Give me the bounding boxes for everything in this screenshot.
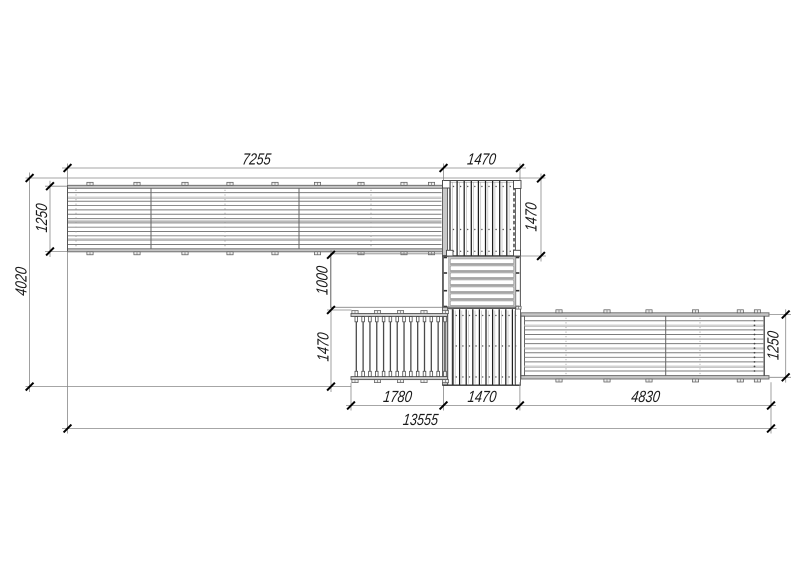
svg-text:1470: 1470	[467, 388, 498, 406]
svg-text:4830: 4830	[630, 388, 661, 406]
svg-text:1470: 1470	[523, 202, 541, 233]
svg-text:13555: 13555	[402, 411, 440, 429]
svg-text:1470: 1470	[466, 150, 497, 168]
svg-text:4020: 4020	[13, 266, 31, 297]
svg-text:1000: 1000	[313, 265, 331, 296]
svg-text:1250: 1250	[765, 330, 783, 361]
svg-text:1250: 1250	[33, 203, 51, 234]
svg-text:1780: 1780	[382, 388, 413, 406]
svg-text:1470: 1470	[315, 332, 333, 363]
svg-text:7255: 7255	[241, 150, 272, 168]
